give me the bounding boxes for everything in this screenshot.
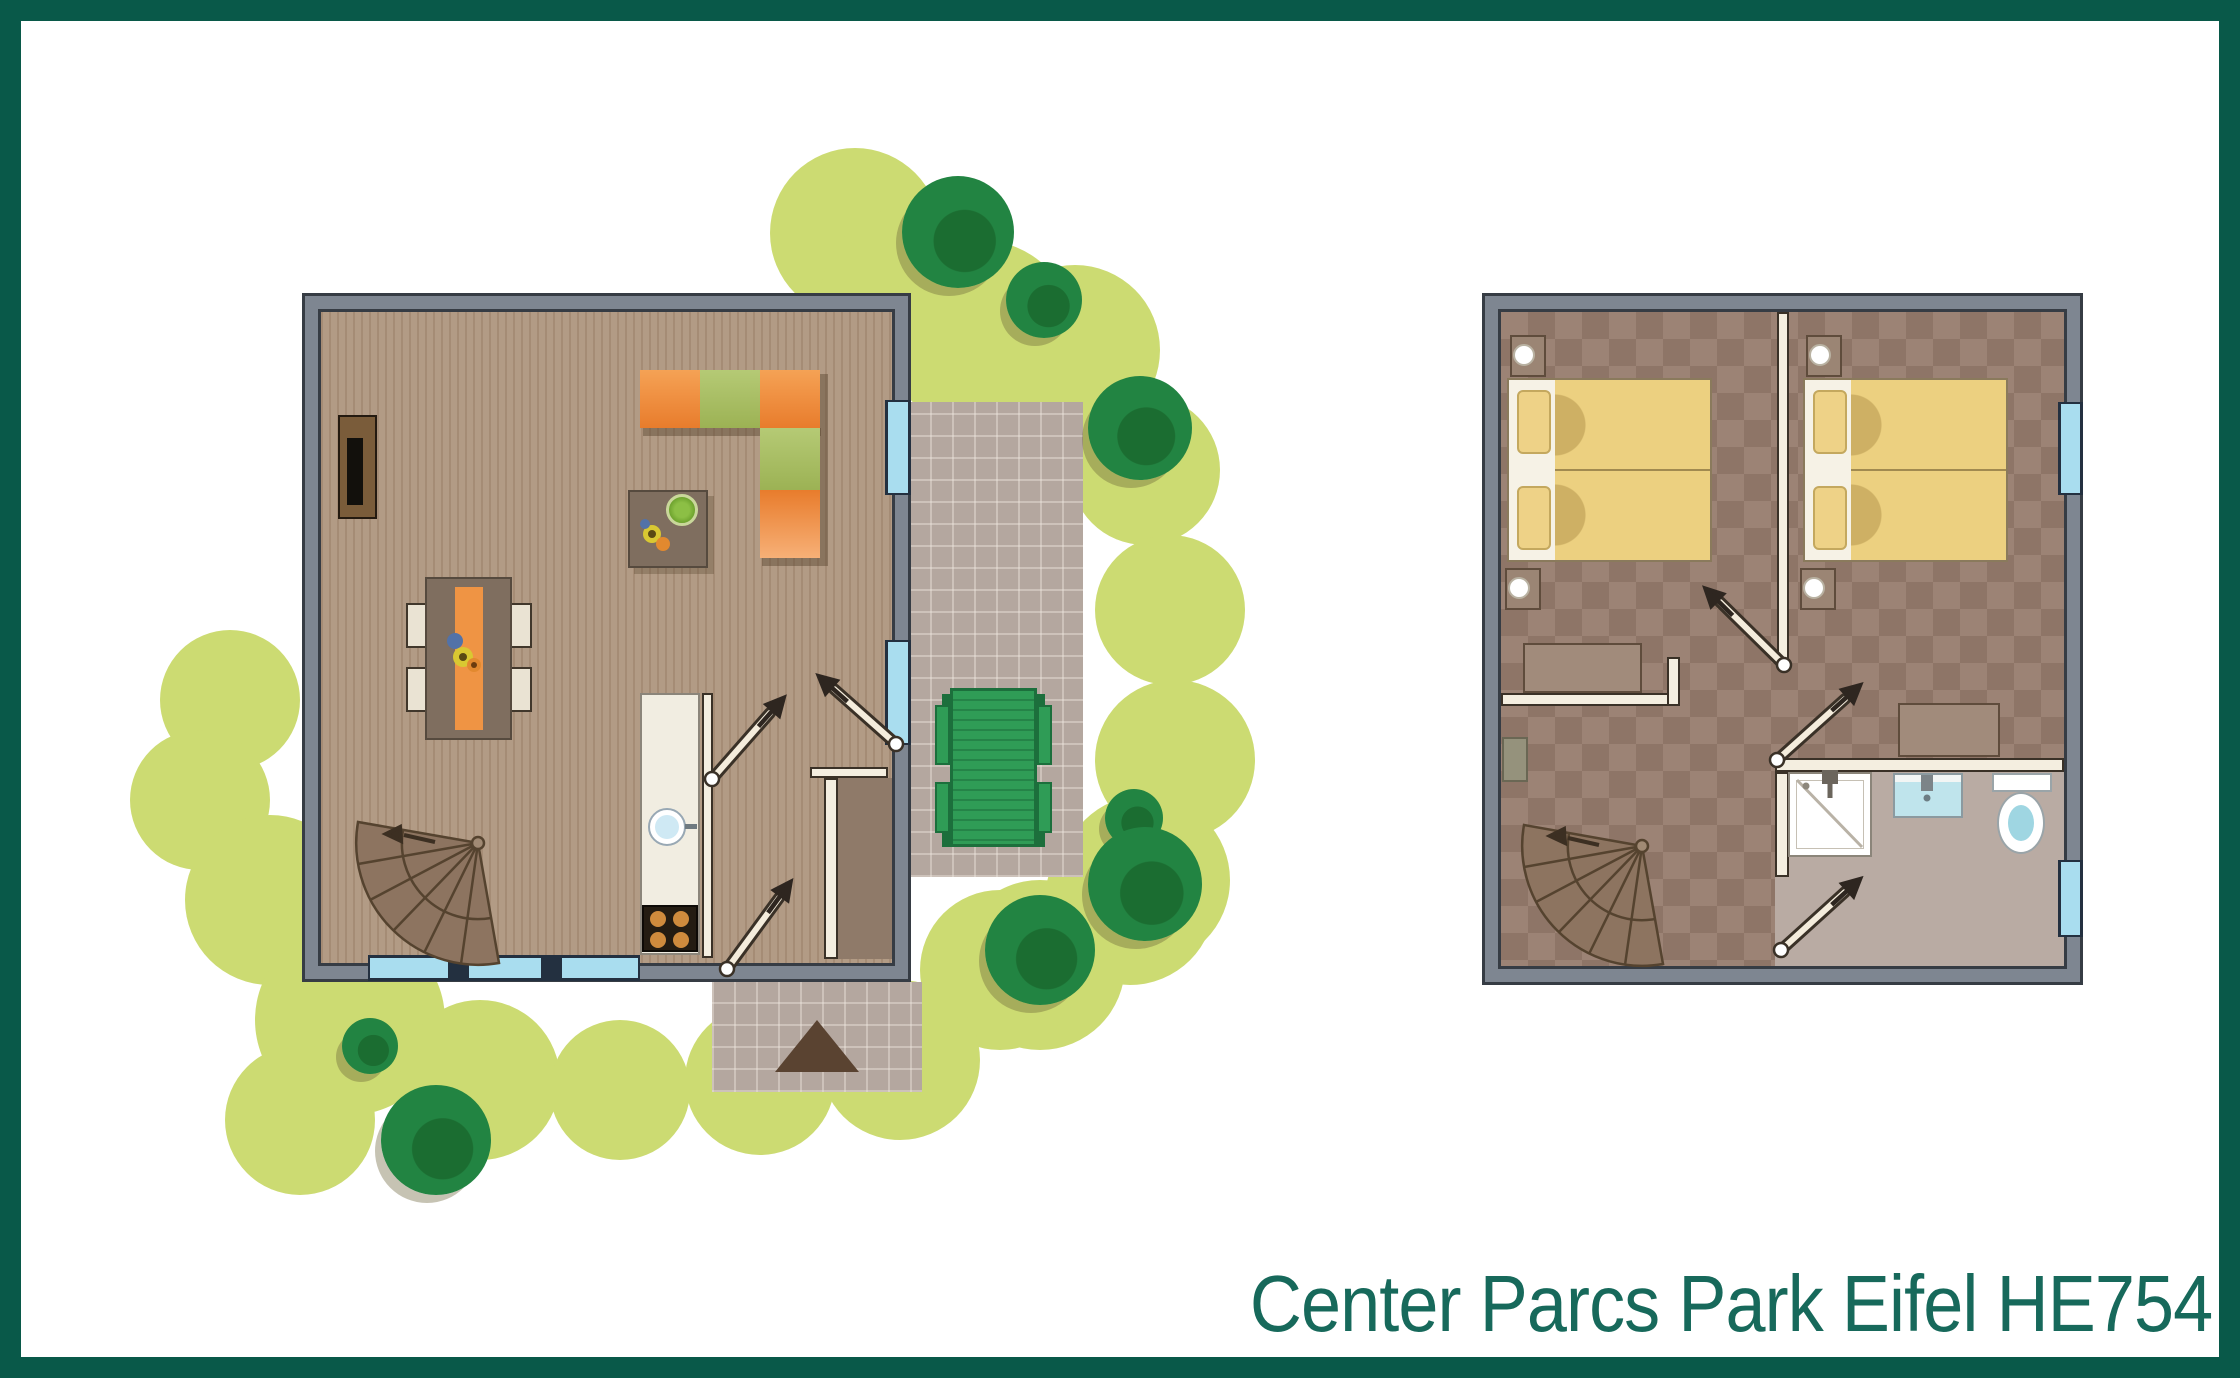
duvet-split-line <box>1851 469 2006 471</box>
window <box>2058 860 2083 937</box>
sofa-cushion <box>760 428 820 490</box>
lamp-icon <box>1508 577 1530 599</box>
dining-chair <box>510 603 532 648</box>
window <box>2058 402 2083 495</box>
living-room-floor <box>318 309 895 966</box>
picnic-bench <box>935 705 950 765</box>
hall-wall <box>810 767 888 778</box>
sofa-shadow <box>820 374 828 558</box>
sofa-cushion <box>640 370 700 428</box>
burner-icon <box>673 932 689 948</box>
faucet-icon <box>685 824 697 829</box>
window-mullion <box>450 955 467 981</box>
stair-railing <box>1501 693 1680 706</box>
tv-icon <box>347 438 363 505</box>
kitchen-sink-basin <box>655 815 679 839</box>
shower-tray-inner <box>1796 780 1864 849</box>
stair-railing <box>1667 657 1680 706</box>
sofa-cushion <box>760 370 820 428</box>
wall-shelf <box>1502 737 1528 782</box>
window <box>560 955 640 981</box>
faucet-icon <box>1921 775 1933 791</box>
toilet-cistern <box>1992 773 2052 792</box>
sofa-cushion <box>760 490 820 558</box>
burner-icon <box>650 911 666 927</box>
picnic-table-leg <box>942 833 952 847</box>
bush-icon <box>1088 827 1202 941</box>
bush-icon <box>902 176 1014 288</box>
lamp-icon <box>1809 344 1831 366</box>
bush-icon <box>985 895 1095 1005</box>
ground-floor-plan <box>302 293 911 982</box>
bathroom-wall <box>1775 758 2064 772</box>
bush-icon <box>1088 376 1192 480</box>
stove <box>642 905 698 952</box>
burner-icon <box>650 932 666 948</box>
floorplan-canvas: Center Parcs Park Eifel HE754 <box>0 0 2240 1378</box>
sofa-cushion <box>700 370 760 428</box>
double-bed <box>1507 378 1712 562</box>
grass-blob <box>1095 535 1245 685</box>
grass-blob <box>550 1020 690 1160</box>
plant-icon <box>666 494 698 526</box>
pillow <box>1813 486 1847 550</box>
picnic-bench <box>1037 705 1052 765</box>
duvet-split-line <box>1555 469 1710 471</box>
window <box>368 955 450 981</box>
picnic-table <box>950 688 1037 847</box>
dining-chair <box>510 667 532 712</box>
landing-bench <box>1523 643 1642 693</box>
hall-wall <box>824 778 838 959</box>
bedroom-divider-wall <box>1777 312 1789 667</box>
hallway-floor <box>838 778 892 959</box>
kitchen-partition-wall <box>702 693 713 958</box>
upper-floor-surface <box>1498 309 2067 969</box>
bush-icon <box>381 1085 491 1195</box>
picnic-bench <box>935 782 950 833</box>
pillow <box>1517 390 1551 454</box>
plan-title: Center Parcs Park Eifel HE754 <box>1250 1258 2212 1350</box>
sofa-shadow <box>762 558 828 566</box>
door-mat-icon <box>775 1020 859 1072</box>
upper-floor-plan <box>1482 293 2083 985</box>
picnic-bench <box>1037 782 1052 833</box>
window-mullion <box>543 955 560 981</box>
window <box>885 400 911 495</box>
bush-icon <box>342 1018 398 1074</box>
pillow <box>1517 486 1551 550</box>
double-bed <box>1803 378 2008 562</box>
window <box>467 955 543 981</box>
lamp-icon <box>1803 577 1825 599</box>
toilet-water <box>2008 805 2034 841</box>
wardrobe <box>1898 703 2000 757</box>
picnic-table-leg <box>1035 833 1045 847</box>
terrace-door-window <box>885 640 911 745</box>
lamp-icon <box>1513 344 1535 366</box>
table-runner <box>455 587 483 730</box>
bush-icon <box>1006 262 1082 338</box>
burner-icon <box>673 911 689 927</box>
pillow <box>1813 390 1847 454</box>
bathroom-wall <box>1775 772 1789 877</box>
